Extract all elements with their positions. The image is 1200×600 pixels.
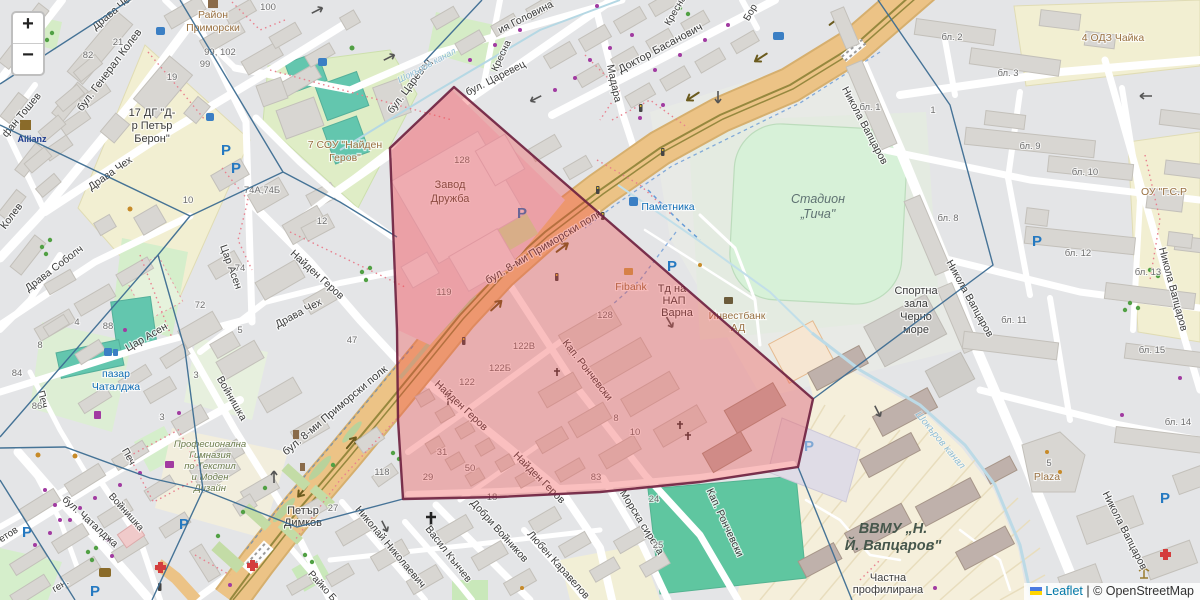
svg-text:3: 3 (193, 370, 198, 381)
svg-text:бл. 9: бл. 9 (1019, 141, 1040, 152)
svg-text:27: 27 (328, 503, 339, 514)
svg-text:24: 24 (649, 494, 660, 505)
svg-text:84: 84 (12, 368, 23, 379)
svg-text:бл. 13: бл. 13 (1135, 267, 1161, 278)
svg-text:Геров": Геров" (329, 152, 361, 164)
svg-text:бл. 11: бл. 11 (1001, 315, 1027, 326)
svg-text:99: 99 (200, 59, 211, 70)
svg-text:P: P (231, 160, 241, 177)
svg-text:7 СОУ "Найден: 7 СОУ "Найден (308, 139, 383, 151)
svg-text:бл. 8: бл. 8 (937, 213, 958, 224)
svg-text:Берон": Берон" (134, 133, 170, 145)
svg-text:бл. 10: бл. 10 (1072, 167, 1098, 178)
svg-text:82: 82 (83, 50, 94, 61)
svg-text:25: 25 (653, 540, 664, 551)
svg-text:5: 5 (1046, 458, 1051, 469)
svg-text:и Моден: и Моден (192, 472, 230, 483)
svg-text:10: 10 (183, 195, 194, 206)
svg-text:бл. 2: бл. 2 (941, 32, 962, 43)
svg-text:21: 21 (113, 37, 124, 48)
svg-text:4 ОДЗ Чайка: 4 ОДЗ Чайка (1082, 32, 1145, 44)
svg-text:Гимназия: Гимназия (189, 450, 231, 461)
svg-text:пазар: пазар (102, 368, 130, 380)
svg-text:бл. 1: бл. 1 (859, 102, 880, 113)
svg-text:P: P (221, 142, 231, 159)
svg-text:Димков: Димков (284, 517, 322, 529)
svg-text:Й. Вапцаров": Й. Вапцаров" (845, 536, 943, 554)
svg-text:по Текстил: по Текстил (184, 461, 236, 472)
svg-text:17 ДГ "Д-: 17 ДГ "Д- (129, 107, 176, 119)
svg-text:зала: зала (904, 298, 929, 310)
svg-text:бл. 14: бл. 14 (1165, 417, 1191, 428)
svg-text:86: 86 (32, 401, 43, 412)
svg-text:Чаталджа: Чаталджа (92, 381, 140, 393)
svg-text:Паметника: Паметника (641, 201, 694, 213)
svg-text:74А,74Б: 74А,74Б (244, 185, 280, 196)
svg-text:бл. 15: бл. 15 (1139, 345, 1165, 356)
svg-text:„Тича": „Тича" (800, 207, 836, 221)
svg-text:4: 4 (74, 317, 79, 328)
svg-text:74: 74 (235, 263, 246, 274)
svg-text:P: P (1032, 233, 1042, 250)
svg-text:8: 8 (37, 340, 42, 351)
svg-text:Район: Район (198, 9, 228, 21)
svg-text:бл. 3: бл. 3 (997, 68, 1018, 79)
svg-text:ОУ "Г.С.Р: ОУ "Г.С.Р (1141, 186, 1187, 198)
svg-text:3: 3 (159, 412, 164, 423)
svg-text:12: 12 (317, 216, 328, 227)
svg-text:р Петър: р Петър (132, 120, 173, 132)
svg-text:88: 88 (103, 321, 114, 332)
svg-text:Частна: Частна (870, 572, 907, 584)
svg-text:Професионална: Професионална (174, 439, 246, 450)
svg-text:Спортна: Спортна (894, 285, 938, 297)
svg-text:Plaza: Plaza (1034, 471, 1060, 483)
svg-text:Петър: Петър (287, 505, 319, 517)
svg-text:19: 19 (167, 72, 178, 83)
svg-text:P: P (804, 438, 814, 455)
svg-text:Черно: Черно (900, 311, 932, 323)
svg-text:47: 47 (347, 335, 358, 346)
svg-text:P: P (22, 524, 32, 541)
svg-text:Стадион: Стадион (791, 192, 845, 206)
svg-text:P: P (1160, 490, 1170, 507)
svg-text:ВВМУ „Н.: ВВМУ „Н. (859, 521, 928, 537)
svg-text:72: 72 (195, 300, 206, 311)
svg-text:P: P (90, 583, 100, 600)
svg-text:118: 118 (374, 467, 389, 478)
svg-text:море: море (903, 324, 929, 336)
svg-text:бл. 12: бл. 12 (1065, 248, 1091, 259)
svg-text:5: 5 (237, 325, 242, 336)
svg-text:профилирана: профилирана (853, 584, 924, 596)
svg-text:1: 1 (930, 105, 935, 116)
svg-text:100: 100 (260, 2, 276, 13)
